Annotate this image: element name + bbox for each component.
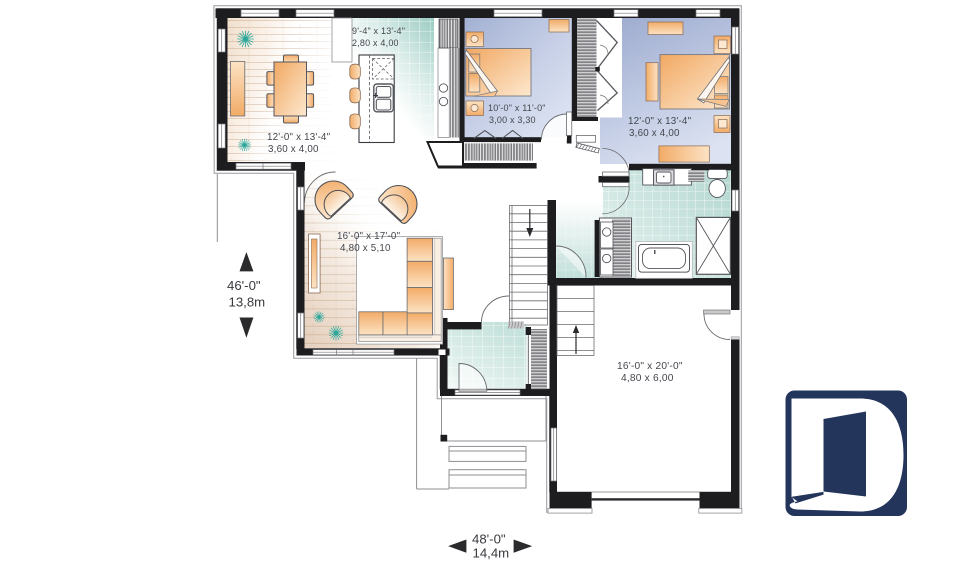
svg-text:3,60 x 4,00: 3,60 x 4,00 xyxy=(268,144,319,155)
svg-text:3,00 x 3,30: 3,00 x 3,30 xyxy=(489,115,536,125)
svg-text:9'-4" x 13'-4": 9'-4" x 13'-4" xyxy=(352,26,405,36)
svg-text:16'-0" x 17'-0": 16'-0" x 17'-0" xyxy=(337,231,401,242)
svg-text:4,80 x 6,00: 4,80 x 6,00 xyxy=(621,373,674,384)
svg-text:16'-0" x 20'-0": 16'-0" x 20'-0" xyxy=(617,361,683,372)
svg-text:14,4m: 14,4m xyxy=(473,546,510,561)
svg-text:2,80 x 4,00: 2,80 x 4,00 xyxy=(352,38,399,48)
svg-text:13,8m: 13,8m xyxy=(229,295,266,310)
svg-text:4,80 x 5,10: 4,80 x 5,10 xyxy=(340,243,391,254)
svg-text:12'-0" x 13'-4": 12'-0" x 13'-4" xyxy=(267,132,331,143)
svg-text:3,60 x 4,00: 3,60 x 4,00 xyxy=(629,128,680,139)
svg-text:12'-0" x 13'-4": 12'-0" x 13'-4" xyxy=(628,116,692,127)
svg-text:48'-0": 48'-0" xyxy=(472,532,506,547)
svg-text:10'-0" x 11'-0": 10'-0" x 11'-0" xyxy=(488,103,546,113)
svg-text:46'-0": 46'-0" xyxy=(227,278,261,293)
